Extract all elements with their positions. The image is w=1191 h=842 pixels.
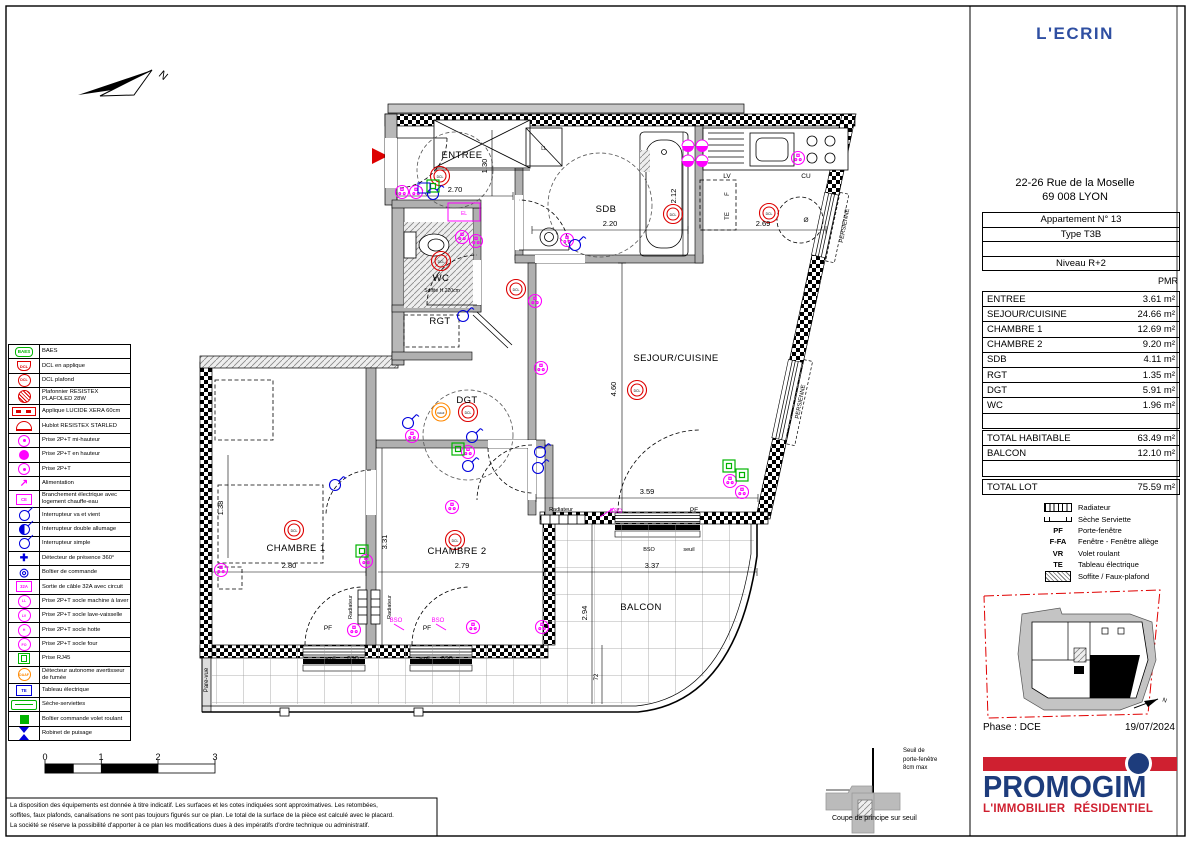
window-persienne-2 [771,356,812,445]
legend-label: Prise 2P+T [40,463,71,476]
legend-label: Sortie de câble 32A avec circuit [40,580,123,593]
legend-label: Branchement électrique avec logement cha… [40,491,130,507]
legend-row: Interrupteur simple [9,537,130,551]
plan-label: DCL [438,260,445,264]
area-row: CHAMBRE 1 12.69 m² [983,322,1179,337]
abbreviation-legend: Radiateur Sèche Serviette PF Porte-fenêt… [1038,502,1180,582]
legend-symbol-icon: DCL [17,361,30,371]
legend-symbol-icon [19,510,30,521]
legend-row: Prise RJ45 [9,652,130,666]
north-arrow-icon [78,70,152,96]
plan-label: 3 [212,752,217,762]
total-value: 12.10 m² [1138,448,1176,459]
area-row: DGT 5.91 m² [983,383,1179,398]
plan-label: BSO [441,656,453,662]
legend-symbol-glyph: ↗ [20,478,28,489]
plan-label: BSO [347,656,359,662]
legend-symbol-icon: DAAF [18,668,31,681]
abbreviation-label: Tableau électrique [1078,560,1139,569]
legend-label: DCL en applique [40,359,85,372]
coupe-note: Seuil de porte-fenêtre 8cm max [903,747,973,773]
phase-row: Phase : DCE 19/07/2024 [983,722,1175,733]
apartment-info-row: Niveau R+2 [983,257,1179,271]
plan-label: DCL [437,175,444,179]
plan-label: CU [801,173,811,180]
legend-label: Interrupteur va et vient [40,508,100,521]
plan-label: DAAF [438,411,445,415]
legend-symbol-cell [9,388,40,404]
plan-label: BALCON [620,602,661,613]
legend-symbol-glyph: DCL [20,364,28,369]
abbreviation-symbol: TE [1038,560,1078,569]
legend-symbol-cell [9,712,40,725]
legend-symbol-icon [19,727,29,740]
abbreviation-symbol: PF [1038,526,1078,535]
legend-symbol-glyph: ✚ [20,553,28,564]
legend-symbol-cell: TE [9,684,40,697]
legend-symbol-cell: ✚ [9,552,40,565]
legend-symbol-cell: 32A [9,580,40,593]
legend-symbol-cell: DCL [9,374,40,387]
legend-symbol-cell [9,405,40,418]
legend-symbol-cell [9,448,40,461]
legend-row: FO Prise 2P+T socle four [9,638,130,652]
disclaimer-line: soffites, faux plafonds, canalisations n… [10,811,434,821]
address-line1: 22-26 Rue de la Moselle [972,176,1178,190]
project-title: L'ECRIN [972,24,1178,44]
legend-label: Prise 2P+T socle lave-vaisselle [40,609,122,622]
plan-label: LV [723,173,731,180]
legend-symbol-cell: LL [9,595,40,608]
abbreviation-label: Radiateur [1078,503,1111,512]
plan-label: EL [461,211,467,217]
legend-label: Boîtier de commande [40,566,97,579]
plan-label: DCL [634,389,641,393]
area-row: WC 1.96 m² [983,398,1179,413]
abbreviation-row: F-FA Fenêtre - Fenêtre allège [1038,536,1180,547]
plan-label: DCL [452,539,459,543]
legend-symbol-cell [9,419,40,432]
plan-label: 1.30 [480,159,489,174]
legend-symbol-cell [9,698,40,711]
room-name: CHAMBRE 1 [987,324,1042,335]
area-row: SEJOUR/CUISINE 24.66 m² [983,307,1179,322]
plan-label: 1 [98,752,103,762]
legend-label: DCL plafond [40,374,74,387]
plan-label: CHAMBRE 2 [427,546,486,557]
legend-label: Interrupteur simple [40,537,90,550]
room-name: WC [987,400,1003,411]
legend-symbol-icon [18,463,30,475]
legend-label: Prise 2P+T socle hotte [40,623,100,636]
plan-label: WC [433,273,450,284]
room-name: CHAMBRE 2 [987,339,1042,350]
legend-symbol-icon: H [18,624,31,637]
legend-label: Alimentation [40,477,74,490]
disclaimer-line: La disposition des équipements est donné… [10,801,434,811]
legend-symbol-cell [9,652,40,665]
legend-row: H Prise 2P+T socle hotte [9,623,130,637]
plan-label: 2.12 [669,189,678,204]
legend-label: Plafonnier RESISTEX PLAFOLED 28W [40,388,130,404]
total-value: 63.49 m² [1138,433,1176,444]
abbreviation-symbol: VR [1038,549,1078,558]
legend-row: DCL DCL plafond [9,374,130,388]
total-lot-value: 75.59 m² [1138,482,1176,493]
legend-row: BAES BAES [9,345,130,359]
legend-symbol-cell: CE [9,491,40,507]
abbreviation-symbol: F-FA [1038,537,1078,546]
legend-symbol-cell: DAAF [9,667,40,683]
legend-symbol-cell [9,463,40,476]
abbreviation-row: Soffite / Faux-plafond [1038,570,1180,581]
area-row: RGT 1.35 m² [983,368,1179,383]
abbreviation-symbol [1038,516,1078,522]
plan-label: Radiateur [348,595,354,619]
legend-row: DCL DCL en applique [9,359,130,373]
total-row [983,461,1179,475]
legend-symbol-cell: ↗ [9,477,40,490]
plan-label: DCL [513,288,520,292]
room-area: 1.35 m² [1143,370,1175,381]
coupe-note-line: porte-fenêtre [903,756,973,765]
abbreviation-label: Fenêtre - Fenêtre allège [1078,537,1158,546]
plan-label: PF [423,625,431,632]
abbreviation-label: Sèche Serviette [1078,515,1131,524]
abbreviation-symbol [1038,571,1078,582]
plan-label: DCL [766,212,773,216]
plan-label: DCL [291,529,298,533]
plan-label: PF [324,625,332,632]
room-name: SEJOUR/CUISINE [987,309,1067,320]
legend-symbol-cell [9,508,40,521]
date-label: 19/07/2024 [1125,722,1175,733]
legend-symbol-icon [19,538,30,549]
room-area: 5.91 m² [1143,385,1175,396]
plan-label: DCL [465,411,472,415]
plan-label: 4.60 [609,382,618,397]
room-name: ENTREE [987,294,1026,305]
plan-label: SEJOUR/CUISINE [633,353,718,364]
total-lot-row: TOTAL LOT 75.59 m² [983,480,1179,494]
legend-symbol-cell [9,434,40,447]
legend-label: BAES [40,345,57,358]
disclaimer-line: La société se réserve la possibilité d'a… [10,821,434,831]
legend-symbol-glyph: FO [22,643,27,647]
legend-symbol-icon: LL [18,595,31,608]
legend-label: Prise 2P+T socle four [40,638,97,651]
plan-label: 2.70 [448,185,463,194]
plan-label: 72 [594,673,600,680]
legend-symbol-cell: BAES [9,345,40,358]
legend-glyph-icon [1045,571,1071,582]
plan-label: 2.20 [603,219,618,228]
legend-symbol-icon: LV [18,609,31,622]
legend-symbol-icon: ◎ [19,566,29,579]
legend-symbol-glyph: LV [22,614,26,618]
abbreviation-code: PF [1053,526,1063,535]
legend-label: Prise RJ45 [40,652,70,665]
plan-label: BSO [432,618,445,624]
legend-row: Interrupteur double allumage [9,523,130,537]
disclaimer: La disposition des équipements est donné… [10,801,434,831]
legend-symbol-cell: FO [9,638,40,651]
legend-row: Prise 2P+T en hauteur [9,448,130,462]
abbreviation-symbol [1038,503,1078,512]
legend-row: Hublot RESISTEX STARLED [9,419,130,433]
abbreviation-label: Porte-fenêtre [1078,526,1122,535]
legend-symbol-cell [9,523,40,536]
legend-symbol-glyph: H [23,628,26,632]
promogim-logo: PROMOGIM L'IMMOBILIER RÉSIDENTIEL [983,750,1177,815]
legend-symbol-glyph: LL [22,599,26,603]
legend-symbol-icon [18,653,30,664]
legend-symbol-cell: H [9,623,40,636]
room-area: 12.69 m² [1138,324,1176,335]
plan-label: ENTREE [442,150,483,161]
plan-label: RGT [429,316,450,327]
legend-symbol-icon [16,421,32,431]
legend-row: CE Branchement électrique avec logement … [9,491,130,508]
plan-label: seuil [683,547,694,553]
plan-label: PF [690,507,698,514]
legend-label: Hublot RESISTEX STARLED [40,419,117,432]
logo-brand: PROMOGIM [983,771,1163,803]
plan-label: Radiateur [549,507,573,513]
plan-label: 3.37 [645,561,660,570]
legend-symbol-cell: ◎ [9,566,40,579]
legend-symbol-glyph: BAES [18,349,31,354]
abbreviation-row: Radiateur [1038,502,1180,513]
legend-row: DAAF Détecteur autonome avertisseur de f… [9,667,130,684]
apartment-info-table: Appartement N° 13 Type T3B Niveau R+2 [982,212,1180,271]
plan-label: SDB [596,204,617,215]
abbreviation-row: VR Volet roulant [1038,548,1180,559]
plan-label: 2.80 [282,561,297,570]
legend-row: ✚ Détecteur de présence 360° [9,552,130,566]
legend-symbol-icon [19,524,30,535]
site-plan [984,590,1160,718]
legend-symbol-cell: LV [9,609,40,622]
legend-label: Interrupteur double allumage [40,523,116,536]
total-lot-table: TOTAL LOT 75.59 m² [982,479,1180,495]
legend-row: ◎ Boîtier de commande [9,566,130,580]
plan-label: 2.69 [756,219,771,228]
legend-glyph-icon [1044,503,1072,512]
legend-row: LL Prise 2P+T socle machine à laver [9,595,130,609]
legend-row: Plafonnier RESISTEX PLAFOLED 28W [9,388,130,405]
room-area: 24.66 m² [1138,309,1176,320]
plan-label: TE [725,212,731,220]
legend-label: Prise 2P+T en hauteur [40,448,100,461]
abbreviation-code: F-FA [1050,537,1067,546]
room-area: 4.11 m² [1143,354,1175,365]
room-name: RGT [987,370,1007,381]
legend-symbol-icon: DCL [18,374,31,387]
plan-label: Soffite H.220cm [424,288,459,294]
legend-label: Détecteur de présence 360° [40,552,114,565]
plan-label: Pare-vue [204,667,210,692]
project-address: 22-26 Rue de la Moselle 69 008 LYON [972,176,1178,205]
plan-label: 3.31 [380,535,389,550]
plan-label: DCL [670,213,677,217]
coupe-caption: Coupe de principe sur seuil [832,815,972,822]
legend-symbol-icon [20,715,29,724]
area-row: SDB 4.11 m² [983,353,1179,368]
room-areas-table: ENTREE 3.61 m² SEJOUR/CUISINE 24.66 m² C… [982,291,1180,429]
total-row: TOTAL HABITABLE 63.49 m² [983,431,1179,446]
address-line2: 69 008 LYON [972,190,1178,204]
legend-row: Interrupteur va et vient [9,508,130,522]
legend-symbol-icon: CE [16,494,32,505]
legend-symbol-icon: ✚ [20,553,28,564]
legend-symbol-cell: DCL [9,359,40,372]
coupe-note-line: 8cm max [903,764,973,773]
legend-symbol-icon: 32A [16,581,32,592]
plan-label: seuil [418,656,429,662]
legend-symbol-cell [9,537,40,550]
scale-bar [45,760,215,773]
symbols-legend: BAES BAES DCL DCL en applique DCL DCL pl… [8,344,131,741]
abbreviation-label: Soffite / Faux-plafond [1078,572,1149,581]
room-area: 9.20 m² [1143,339,1175,350]
plan-label: DGT [456,395,477,406]
plan-sheet: ENTREESDBWCRGTDGTSEJOUR/CUISINECHAMBRE 1… [0,0,1191,842]
total-row: BALCON 12.10 m² [983,446,1179,461]
legend-row: TE Tableau électrique [9,684,130,698]
plan-label: 2 [155,752,160,762]
total-lot-label: TOTAL LOT [987,482,1038,493]
plan-label: CHAMBRE 1 [266,543,325,554]
plan-label: LL [541,146,547,152]
plan-label: PERSIENNE [839,208,852,243]
room-name: SDB [987,354,1007,365]
legend-row: Prise 2P+T mi-hauteur [9,434,130,448]
plan-label: Radiateur [387,595,393,619]
legend-label: Prise 2P+T socle machine à laver [40,595,128,608]
plan-label: BSO [643,547,655,553]
abbreviation-row: TE Tableau électrique [1038,559,1180,570]
legend-row: 32A Sortie de câble 32A avec circuit [9,580,130,594]
room-name: DGT [987,385,1007,396]
plan-label: N [1161,697,1167,704]
legend-row: Sèche-serviettes [9,698,130,712]
plan-label: 3.59 [640,487,655,496]
legend-symbol-icon: FO [18,638,31,651]
plan-label: F [725,192,731,196]
legend-label: Sèche-serviettes [40,698,85,711]
legend-symbol-icon [18,390,31,403]
plan-label: BSO [610,509,623,515]
plan-label: Ø [803,217,808,224]
legend-row: LV Prise 2P+T socle lave-vaisselle [9,609,130,623]
legend-symbol-cell [9,727,40,740]
legend-symbol-glyph: CE [21,497,27,502]
legend-label: Robinet de puisage [40,727,92,740]
legend-symbol-icon: ↗ [20,478,28,489]
plan-label: 1.38 [216,501,225,516]
abbreviation-label: Volet roulant [1078,549,1120,558]
phase-label: Phase : DCE [983,722,1041,733]
abbreviation-code: VR [1053,549,1063,558]
legend-row: Robinet de puisage [9,727,130,740]
legend-symbol-icon: TE [16,685,32,696]
abbreviation-row: PF Porte-fenêtre [1038,525,1180,536]
area-row: CHAMBRE 2 9.20 m² [983,338,1179,353]
total-label: TOTAL HABITABLE [987,433,1071,444]
total-label: BALCON [987,448,1026,459]
legend-label: Prise 2P+T mi-hauteur [40,434,100,447]
legend-symbol-glyph: 32A [20,584,28,589]
plan-label: 2.94 [580,606,589,621]
legend-label: Tableau électrique [40,684,89,697]
coupe-note-line: Seuil de [903,747,973,756]
area-row [983,414,1179,428]
legend-symbol-icon [11,700,37,710]
legend-row: Prise 2P+T [9,463,130,477]
apartment-info-row [983,242,1179,257]
totals-table: TOTAL HABITABLE 63.49 m² BALCON 12.10 m² [982,430,1180,477]
apartment-info-row: Appartement N° 13 [983,213,1179,228]
room-area: 3.61 m² [1143,294,1175,305]
abbreviation-code: TE [1053,560,1063,569]
plan-label: 0 [42,752,47,762]
plan-label: BSO [390,618,403,624]
legend-symbol-glyph: DCL [20,378,27,382]
legend-symbol-icon [19,450,29,460]
legend-symbol-icon [12,407,36,416]
legend-label: Boîtier commande volet roulant [40,712,122,725]
apartment-info-row: Type T3B [983,228,1179,243]
plan-label: N [156,69,170,83]
legend-row: Applique LUCIDE XERA 60cm [9,405,130,419]
legend-symbol-glyph: ◎ [19,566,29,579]
room-area: 1.96 m² [1143,400,1175,411]
legend-glyph-icon [1045,516,1071,522]
legend-symbol-icon [18,435,30,447]
pmr-label: PMR [982,276,1178,286]
legend-symbol-glyph: TE [21,688,26,693]
legend-label: Applique LUCIDE XERA 60cm [40,405,120,418]
plan-label: 2.79 [455,561,470,570]
legend-row: ↗ Alimentation [9,477,130,491]
area-row: ENTREE 3.61 m² [983,292,1179,307]
logo-tagline: L'IMMOBILIER RÉSIDENTIEL [983,803,1177,815]
abbreviation-row: Sèche Serviette [1038,513,1180,524]
plan-label: seuil [324,656,335,662]
legend-symbol-icon: BAES [15,347,34,357]
legend-symbol-glyph: DAAF [19,673,29,677]
legend-row: Boîtier commande volet roulant [9,712,130,726]
legend-label: Détecteur autonome avertisseur de fumée [40,667,130,683]
